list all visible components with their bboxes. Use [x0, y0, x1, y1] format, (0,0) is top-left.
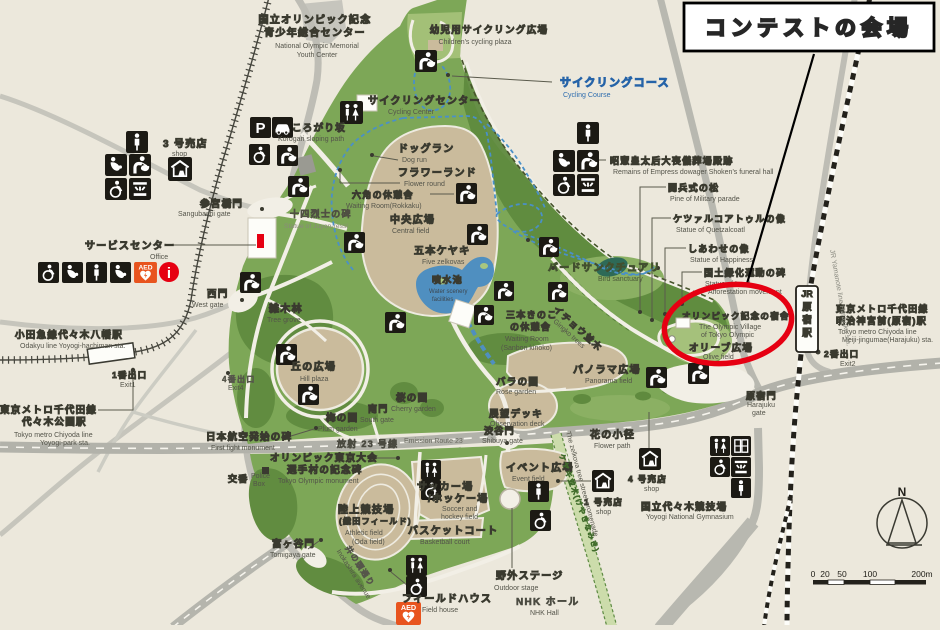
svg-text:幼児用サイクリング広場: 幼児用サイクリング広場 — [430, 24, 549, 36]
svg-text:参宮橋門: 参宮橋門 — [199, 198, 243, 210]
svg-text:Pine of Military parade: Pine of Military parade — [670, 196, 740, 203]
svg-text:First fight monument: First fight monument — [211, 445, 275, 452]
svg-text:3 号売店: 3 号売店 — [163, 137, 208, 150]
svg-text:Bird sanctuary: Bird sanctuary — [598, 276, 643, 283]
svg-text:梅の園: 梅の園 — [326, 412, 358, 424]
svg-text:原宿門: 原宿門 — [746, 390, 777, 401]
svg-text:Field house: Field house — [422, 607, 458, 614]
svg-text:選手村の記念碑: 選手村の記念碑 — [287, 464, 363, 476]
svg-text:Tree grove: Tree grove — [267, 317, 301, 324]
svg-text:東京メトロ千代田線: 東京メトロ千代田線 — [836, 303, 929, 314]
svg-text:shop: shop — [172, 151, 187, 158]
svg-text:サービスセンター: サービスセンター — [85, 239, 175, 252]
svg-text:噴水池: 噴水池 — [432, 274, 463, 285]
svg-text:桜の園: 桜の園 — [396, 392, 428, 404]
svg-text:Soccer and: Soccer and — [442, 506, 478, 513]
svg-text:4 号売店: 4 号売店 — [628, 474, 667, 484]
svg-text:丘の広場: 丘の広場 — [291, 360, 336, 373]
svg-text:Flower round: Flower round — [404, 181, 445, 188]
svg-text:NHK Hall: NHK Hall — [530, 610, 559, 617]
svg-text:Emission Route 23: Emission Route 23 — [404, 438, 463, 445]
svg-text:代々木公園駅: 代々木公園駅 — [21, 416, 87, 428]
svg-text:Box: Box — [253, 481, 266, 488]
svg-text:Yoyogi National Gymnasium: Yoyogi National Gymnasium — [646, 514, 734, 521]
svg-text:Statue of Quetzalcoatl: Statue of Quetzalcoatl — [676, 227, 745, 234]
svg-text:The Olympic Village: The Olympic Village — [699, 324, 761, 331]
svg-text:Exit2: Exit2 — [840, 361, 856, 368]
svg-text:バラの園: バラの園 — [496, 376, 539, 388]
svg-text:交番: 交番 — [228, 473, 249, 484]
svg-text:gate: gate — [752, 410, 766, 417]
svg-text:Office: Office — [150, 254, 168, 261]
svg-text:/ホッケー場: /ホッケー場 — [428, 492, 489, 505]
svg-text:Youth Center: Youth Center — [297, 52, 338, 59]
svg-text:バードサンクチュアリ: バードサンクチュアリ — [548, 262, 661, 274]
svg-text:National Olympic Memorial: National Olympic Memorial — [275, 43, 359, 50]
svg-text:West gate: West gate — [192, 302, 223, 309]
svg-text:野外ステージ: 野外ステージ — [496, 569, 564, 582]
svg-text:1番出口: 1番出口 — [112, 370, 147, 380]
svg-text:しあわせの像: しあわせの像 — [688, 243, 750, 254]
svg-text:フィールドハウス: フィールドハウス — [402, 593, 492, 605]
svg-text:小田急線代々木八幡駅: 小田急線代々木八幡駅 — [14, 329, 123, 341]
svg-text:Statue of Happiness: Statue of Happiness — [690, 257, 754, 264]
svg-text:国土緑化運動の碑: 国土緑化運動の碑 — [704, 267, 786, 278]
svg-text:十四烈士の碑: 十四烈士の碑 — [290, 208, 352, 219]
svg-text:of Tokyo Olympic: of Tokyo Olympic — [701, 332, 755, 339]
svg-text:日本航空発始の碑: 日本航空発始の碑 — [206, 431, 292, 443]
svg-text:Waiting Room(Rokkaku): Waiting Room(Rokkaku) — [346, 203, 422, 210]
svg-text:4番出口: 4番出口 — [222, 374, 256, 384]
svg-text:東京メトロ千代田線: 東京メトロ千代田線 — [0, 404, 97, 416]
svg-text:オリンピック東京大会: オリンピック東京大会 — [270, 452, 378, 464]
svg-text:の休憩舎: の休憩舎 — [510, 321, 551, 332]
svg-text:facilities: facilities — [432, 297, 453, 303]
svg-text:hockey field: hockey field — [441, 514, 478, 521]
svg-text:宿: 宿 — [802, 314, 812, 326]
svg-text:昭憲皇太后大喪儀葬場殿跡: 昭憲皇太后大喪儀葬場殿跡 — [610, 155, 734, 166]
svg-text:50: 50 — [837, 569, 847, 579]
svg-text:i: i — [167, 265, 171, 282]
svg-text:JR: JR — [801, 289, 813, 299]
svg-text:20: 20 — [820, 569, 830, 579]
svg-text:N: N — [898, 485, 907, 499]
svg-text:Cherry garden: Cherry garden — [391, 406, 436, 413]
svg-text:100: 100 — [863, 569, 877, 579]
svg-text:三本きのこ: 三本きのこ — [506, 309, 558, 320]
svg-text:Basketball court: Basketball court — [420, 539, 470, 546]
svg-text:South gate: South gate — [360, 417, 394, 424]
svg-text:放射 23 号線: 放射 23 号線 — [336, 438, 398, 449]
svg-text:Tokyo Olympic monument: Tokyo Olympic monument — [278, 478, 359, 485]
svg-text:(Oda field): (Oda field) — [352, 539, 385, 546]
svg-text:NHK ホール: NHK ホール — [516, 596, 580, 608]
svg-text:中央広場: 中央広場 — [390, 213, 435, 226]
svg-text:Sangubashi gate: Sangubashi gate — [178, 211, 231, 218]
svg-text:バスケットコート: バスケットコート — [408, 525, 498, 537]
svg-text:サッカー場: サッカー場 — [417, 480, 474, 493]
svg-text:Statue of Juyon-ressi: Statue of Juyon-ressi — [284, 223, 348, 230]
svg-text:西門: 西門 — [207, 289, 229, 300]
svg-text:パノラマ広場: パノラマ広場 — [573, 363, 641, 376]
svg-text:Event field: Event field — [512, 476, 545, 483]
svg-text:shop: shop — [644, 486, 659, 493]
svg-text:フラワーランド: フラワーランド — [398, 167, 477, 179]
svg-text:Dog run: Dog run — [402, 157, 427, 164]
svg-text:Exit4: Exit4 — [228, 385, 244, 392]
svg-text:コンテストの会場: コンテストの会場 — [705, 16, 913, 40]
svg-text:Remains of Empress dowager Sho: Remains of Empress dowager Shoken's fune… — [613, 169, 774, 176]
svg-text:オリンピック記念の宿舎: オリンピック記念の宿舎 — [682, 311, 790, 321]
svg-text:Children's cycling plaza: Children's cycling plaza — [439, 39, 512, 46]
svg-text:Flower path: Flower path — [594, 443, 631, 450]
svg-text:Tomigaya gate: Tomigaya gate — [270, 552, 316, 559]
svg-text:Police: Police — [251, 473, 270, 480]
svg-text:Odakyu line Yoyogi-hachiman st: Odakyu line Yoyogi-hachiman sta. — [20, 343, 126, 350]
svg-text:Central field: Central field — [392, 228, 429, 235]
svg-text:閲兵式の松: 閲兵式の松 — [668, 182, 720, 193]
svg-text:shop: shop — [596, 509, 611, 516]
svg-text:Five zelkovas: Five zelkovas — [422, 259, 465, 266]
svg-text:Panorama field: Panorama field — [585, 378, 632, 385]
svg-text:2番出口: 2番出口 — [824, 349, 859, 359]
svg-text:Tokyo metro Chiyoda line: Tokyo metro Chiyoda line — [14, 432, 93, 439]
svg-text:Hill plaza: Hill plaza — [300, 376, 329, 383]
svg-text:六角の休憩舎: 六角の休憩舎 — [352, 189, 414, 200]
svg-text:駅: 駅 — [802, 328, 812, 339]
svg-text:青少年総合センター: 青少年総合センター — [264, 26, 366, 39]
svg-text:ころがり坂: ころがり坂 — [292, 122, 346, 134]
svg-text:原: 原 — [802, 302, 812, 313]
svg-text:0: 0 — [811, 569, 816, 579]
svg-text:渋谷門: 渋谷門 — [484, 425, 515, 436]
svg-text:展望デッキ: 展望デッキ — [489, 408, 543, 420]
svg-text:オリーブ広場: オリーブ広場 — [689, 342, 753, 354]
svg-text:(Sanbon kinoko): (Sanbon kinoko) — [501, 345, 552, 352]
svg-text:Harajuku: Harajuku — [747, 402, 775, 409]
svg-text:南門: 南門 — [368, 403, 389, 414]
svg-text:Meiji-jingumae(Harajuku) sta.: Meiji-jingumae(Harajuku) sta. — [842, 337, 933, 344]
svg-text:Water scenery: Water scenery — [429, 289, 467, 295]
svg-text:Shibuya gate: Shibuya gate — [482, 438, 523, 445]
svg-text:Waiting Room: Waiting Room — [505, 336, 549, 343]
svg-text:陸上競技場: 陸上競技場 — [338, 503, 395, 516]
svg-text:ケツァルコアトゥルの像: ケツァルコアトゥルの像 — [673, 213, 786, 224]
svg-text:Cycling Course: Cycling Course — [563, 92, 611, 99]
svg-text:富ヶ谷門: 富ヶ谷門 — [272, 538, 315, 550]
svg-text:サイクリングセンター: サイクリングセンター — [368, 94, 481, 107]
svg-text:Cycling Center: Cycling Center — [388, 109, 435, 116]
svg-text:明治神宮前(原宿)駅: 明治神宮前(原宿)駅 — [836, 315, 927, 326]
svg-text:Exit1: Exit1 — [120, 382, 136, 389]
svg-text:ドッグラン: ドッグラン — [398, 142, 455, 155]
svg-text:サイクリングコース: サイクリングコース — [560, 75, 670, 89]
svg-text:Outdoor stage: Outdoor stage — [494, 585, 538, 592]
svg-text:国立代々木競技場: 国立代々木競技場 — [641, 501, 727, 513]
svg-text:Athletic field: Athletic field — [345, 530, 383, 537]
svg-text:花の小径: 花の小径 — [590, 428, 635, 441]
svg-text:Yoyogi-park sta.: Yoyogi-park sta. — [40, 440, 90, 447]
svg-text:五本ケヤキ: 五本ケヤキ — [414, 244, 471, 257]
svg-text:雑木林: 雑木林 — [268, 302, 303, 315]
svg-text:(織田フィールド): (織田フィールド) — [339, 516, 412, 526]
svg-text:200m: 200m — [911, 569, 932, 579]
svg-text:Olive field: Olive field — [703, 354, 734, 361]
svg-text:Plum garden: Plum garden — [318, 426, 358, 433]
svg-text:国立オリンピック記念: 国立オリンピック記念 — [259, 13, 372, 26]
svg-text:Korogari sloping path: Korogari sloping path — [278, 136, 344, 143]
svg-text:Rose garden: Rose garden — [496, 389, 536, 396]
